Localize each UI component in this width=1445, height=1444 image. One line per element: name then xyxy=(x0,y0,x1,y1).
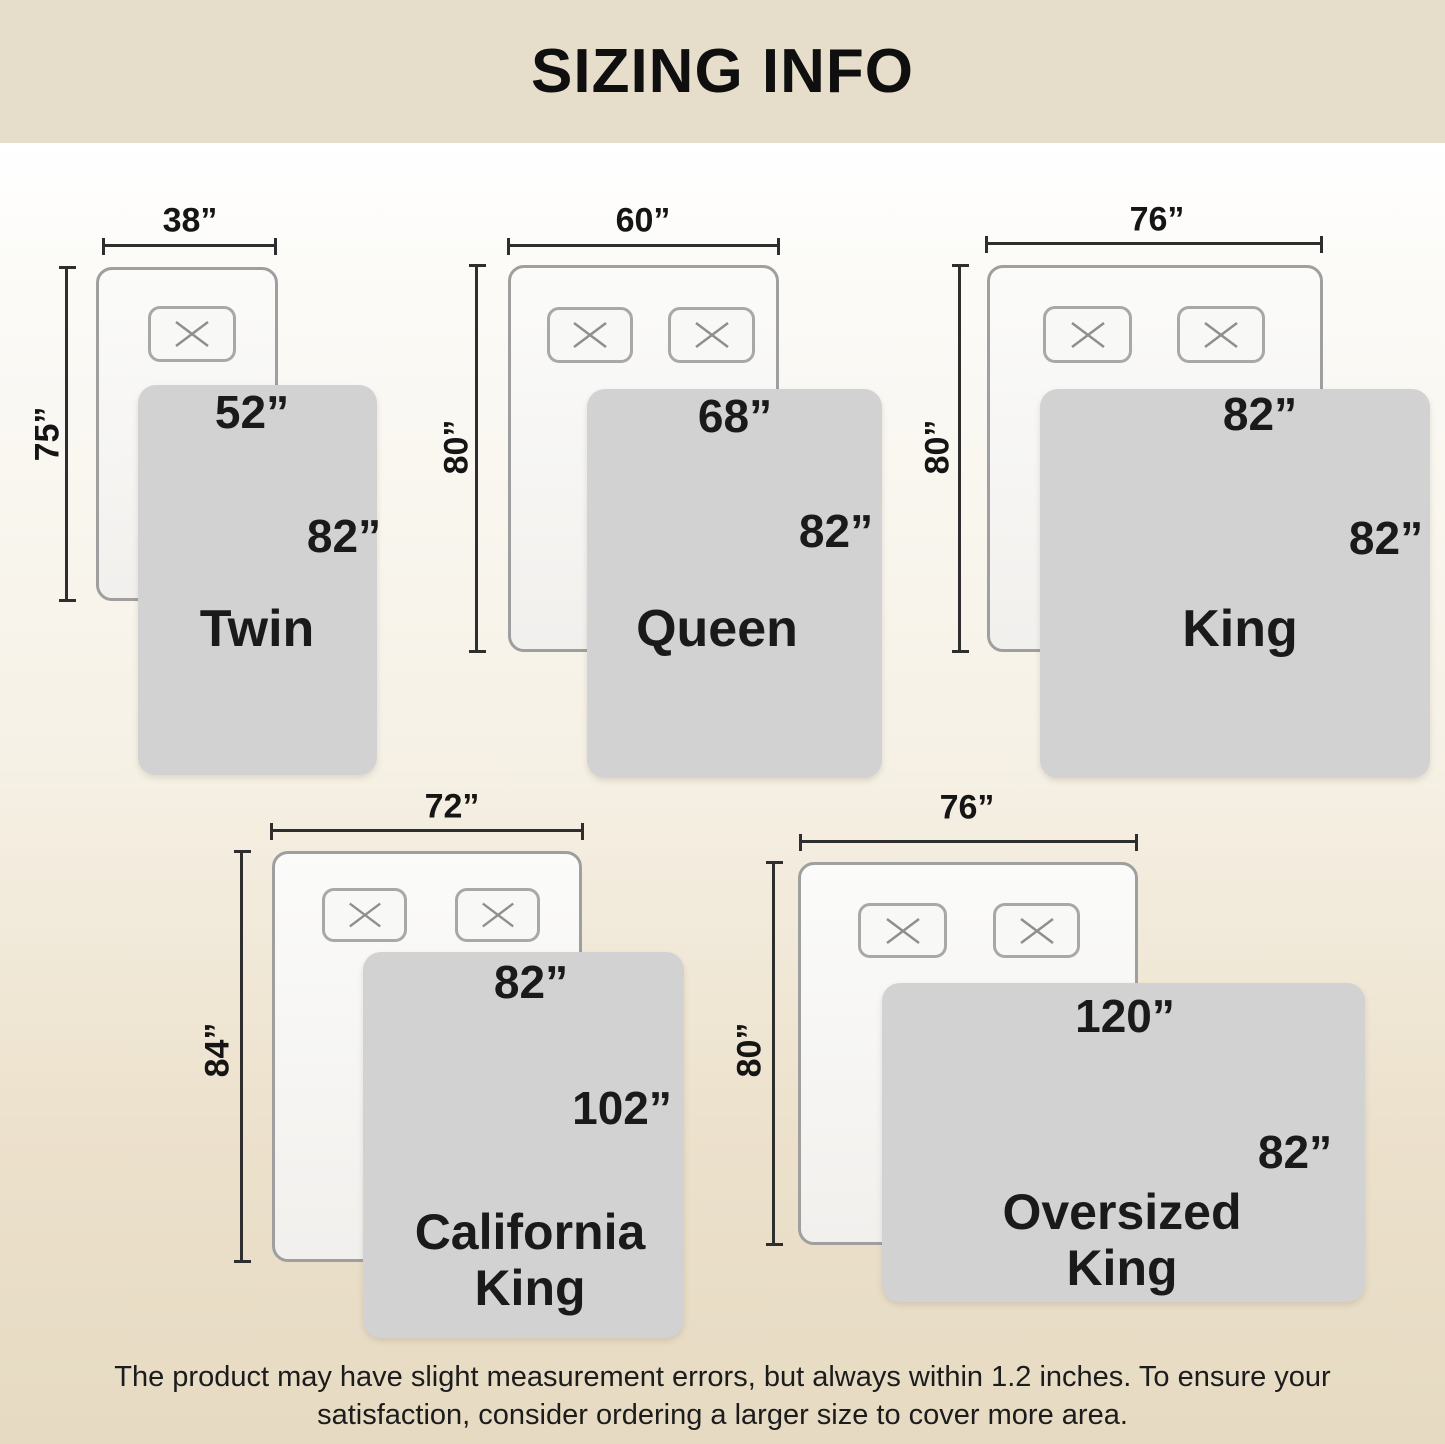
footer-note-line2: satisfaction, consider ordering a larger… xyxy=(0,1396,1445,1434)
queen-bed-width-label: 60” xyxy=(616,202,671,241)
king-blanket-width-label: 82” xyxy=(1223,387,1297,441)
king-name-label: King xyxy=(1080,600,1400,658)
sizing-infographic: SIZING INFO 38” 75” 52” 82” Twin 60” 80” xyxy=(0,0,1445,1444)
california-king-pillow-left xyxy=(322,888,407,942)
footer-note: The product may have slight measurement … xyxy=(0,1358,1445,1434)
twin-pillow xyxy=(148,306,236,362)
pillow-x-icon xyxy=(562,315,618,355)
california-king-width-dimension-line xyxy=(271,829,583,832)
king-width-dimension-line xyxy=(986,242,1322,245)
pillow-x-icon xyxy=(1060,315,1116,355)
king-blanket xyxy=(1040,389,1430,778)
queen-bed-length-label: 80” xyxy=(438,420,477,475)
pillow-x-icon xyxy=(471,896,525,934)
oversized-king-name-label: Oversized King xyxy=(962,1184,1282,1296)
king-bed-length-label: 80” xyxy=(919,420,958,475)
oversized-king-bed-width-label: 76” xyxy=(940,789,995,828)
california-king-blanket-width-label: 82” xyxy=(494,955,568,1009)
pillow-x-icon xyxy=(684,315,740,355)
pillow-x-icon xyxy=(164,314,220,354)
queen-pillow-right xyxy=(668,307,755,363)
twin-width-dimension-line xyxy=(103,244,276,247)
king-bed-width-label: 76” xyxy=(1130,201,1185,240)
header-band: SIZING INFO xyxy=(0,0,1445,143)
twin-blanket xyxy=(138,385,377,775)
queen-blanket xyxy=(587,389,882,778)
king-pillow-left xyxy=(1043,306,1132,363)
pillow-x-icon xyxy=(338,896,392,934)
twin-blanket-width-label: 52” xyxy=(215,385,289,439)
twin-blanket-length-label: 82” xyxy=(307,509,381,563)
california-king-bed-width-label: 72” xyxy=(425,788,480,827)
california-king-bed-length-label: 84” xyxy=(199,1023,238,1078)
pillow-x-icon xyxy=(1009,911,1065,951)
queen-blanket-length-label: 82” xyxy=(799,504,873,558)
pillow-x-icon xyxy=(875,911,931,951)
california-king-blanket-length-label: 102” xyxy=(572,1081,672,1135)
king-pillow-right xyxy=(1177,306,1265,363)
california-king-name-label: California King xyxy=(370,1204,690,1316)
queen-blanket-width-label: 68” xyxy=(698,389,772,443)
twin-name-label: Twin xyxy=(97,600,417,658)
oversized-king-length-dimension-line xyxy=(772,862,775,1245)
oversized-king-pillow-left xyxy=(858,903,947,958)
california-king-length-dimension-line xyxy=(240,851,243,1262)
king-length-dimension-line xyxy=(958,265,961,652)
oversized-king-blanket-length-label: 82” xyxy=(1258,1125,1332,1179)
king-blanket-length-label: 82” xyxy=(1349,511,1423,565)
pillow-x-icon xyxy=(1193,315,1249,355)
oversized-king-blanket-width-label: 120” xyxy=(1075,989,1175,1043)
footer-note-line1: The product may have slight measurement … xyxy=(0,1358,1445,1396)
twin-bed-length-label: 75” xyxy=(29,407,68,462)
queen-name-label: Queen xyxy=(557,600,877,658)
queen-width-dimension-line xyxy=(508,244,779,247)
oversized-king-pillow-right xyxy=(993,903,1080,958)
oversized-king-bed-length-label: 80” xyxy=(731,1023,770,1078)
oversized-king-width-dimension-line xyxy=(800,840,1137,843)
queen-pillow-left xyxy=(547,307,633,363)
twin-bed-width-label: 38” xyxy=(163,202,218,241)
page-title: SIZING INFO xyxy=(531,36,914,107)
california-king-pillow-right xyxy=(455,888,540,942)
